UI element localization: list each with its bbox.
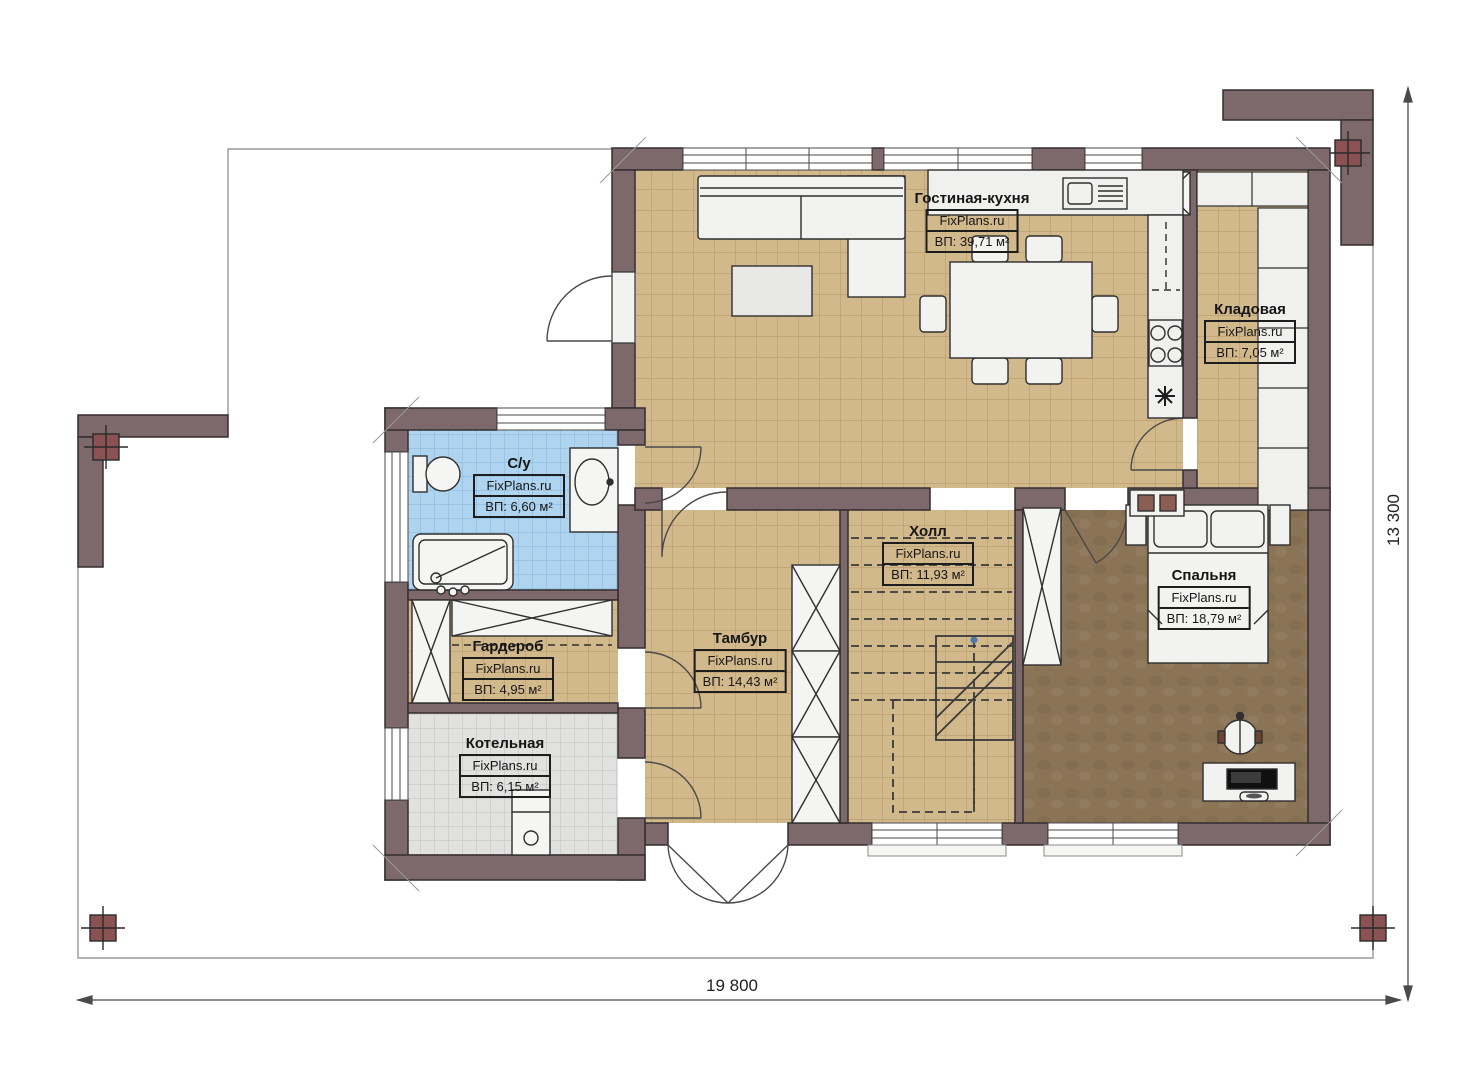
room-info-box: FixPlans.ru ВП: 39,71 м² [926,209,1019,253]
dimension-width: 19 800 [706,976,758,996]
window-boiler-left [385,728,408,800]
room-name: Котельная [459,735,551,752]
window-bath-left [385,452,408,582]
room-name: Тамбур [694,630,787,647]
kitchen-sink [1063,178,1127,209]
room-name: С/у [473,455,565,472]
room-info-box: FixPlans.ru ВП: 11,93 м² [882,542,974,586]
vestibule-closet [792,565,840,823]
window-bottom-2 [1044,823,1182,856]
marker-bottom-left [81,906,125,950]
entry-double-door [668,845,788,903]
coffee-table [732,266,812,316]
room-name: Кладовая [1204,301,1296,318]
window-top-3 [1085,148,1142,170]
dining-table [950,262,1092,358]
room-area: ВП: 18,79 м² [1160,609,1249,628]
floor-plan-canvas: Гостиная-кухня FixPlans.ru ВП: 39,71 м² … [0,0,1473,1080]
watermark-text: FixPlans.ru [928,211,1017,232]
room-info-box: FixPlans.ru ВП: 18,79 м² [1158,586,1251,630]
room-area: ВП: 14,43 м² [696,672,785,691]
room-name: Гардероб [462,638,554,655]
room-name: Холл [882,523,974,540]
room-area: ВП: 4,95 м² [464,680,552,699]
window-top-1 [683,148,872,170]
watermark-text: FixPlans.ru [1160,588,1249,609]
room-name: Спальня [1158,567,1251,584]
dimension-height: 13 300 [1384,494,1404,546]
room-area: ВП: 6,60 м² [475,497,563,516]
watermark-text: FixPlans.ru [696,651,785,672]
desk [1203,763,1295,801]
pedestal-sink [570,448,618,532]
bathtub [413,534,513,596]
watermark-text: FixPlans.ru [884,544,972,565]
room-info-box: FixPlans.ru ВП: 4,95 м² [462,657,554,701]
room-label-boiler: Котельная FixPlans.ru ВП: 6,15 м² [459,735,551,798]
room-label-hall: Холл FixPlans.ru ВП: 11,93 м² [882,523,974,586]
room-area: ВП: 11,93 м² [884,565,972,584]
door-terrace [547,272,635,343]
stove [1149,320,1182,366]
watermark-text: FixPlans.ru [464,659,552,680]
room-label-pantry: Кладовая FixPlans.ru ВП: 7,05 м² [1204,301,1296,364]
room-info-box: FixPlans.ru ВП: 14,43 м² [694,649,787,693]
nightstand-right [1270,505,1290,545]
dresser [1130,490,1184,516]
room-label-bedroom: Спальня FixPlans.ru ВП: 18,79 м² [1158,567,1251,630]
room-info-box: FixPlans.ru ВП: 7,05 м² [1204,320,1296,364]
floor-plan-drawing [0,0,1473,1080]
marker-bottom-right [1351,906,1395,950]
room-label-bathroom: С/у FixPlans.ru ВП: 6,60 м² [473,455,565,518]
wardrobe-cabinet-left [412,600,450,703]
room-area: ВП: 6,15 м² [461,777,549,796]
room-area: ВП: 39,71 м² [928,232,1017,251]
room-label-vestibule: Тамбур FixPlans.ru ВП: 14,43 м² [694,630,787,693]
toilet [413,456,460,492]
watermark-text: FixPlans.ru [475,476,563,497]
room-name: Гостиная-кухня [915,190,1030,207]
window-wing-top [497,408,605,430]
room-label-wardrobe: Гардероб FixPlans.ru ВП: 4,95 м² [462,638,554,701]
bedroom-closet [1023,508,1061,665]
watermark-text: FixPlans.ru [1206,322,1294,343]
boiler-unit [512,790,550,855]
room-info-box: FixPlans.ru ВП: 6,60 м² [473,474,565,518]
window-top-2 [884,148,1032,170]
sink-symbol [1155,386,1175,406]
watermark-text: FixPlans.ru [461,756,549,777]
room-label-living-kitchen: Гостиная-кухня FixPlans.ru ВП: 39,71 м² [915,190,1030,253]
window-bottom-1 [868,823,1006,856]
room-area: ВП: 7,05 м² [1206,343,1294,362]
room-info-box: FixPlans.ru ВП: 6,15 м² [459,754,551,798]
